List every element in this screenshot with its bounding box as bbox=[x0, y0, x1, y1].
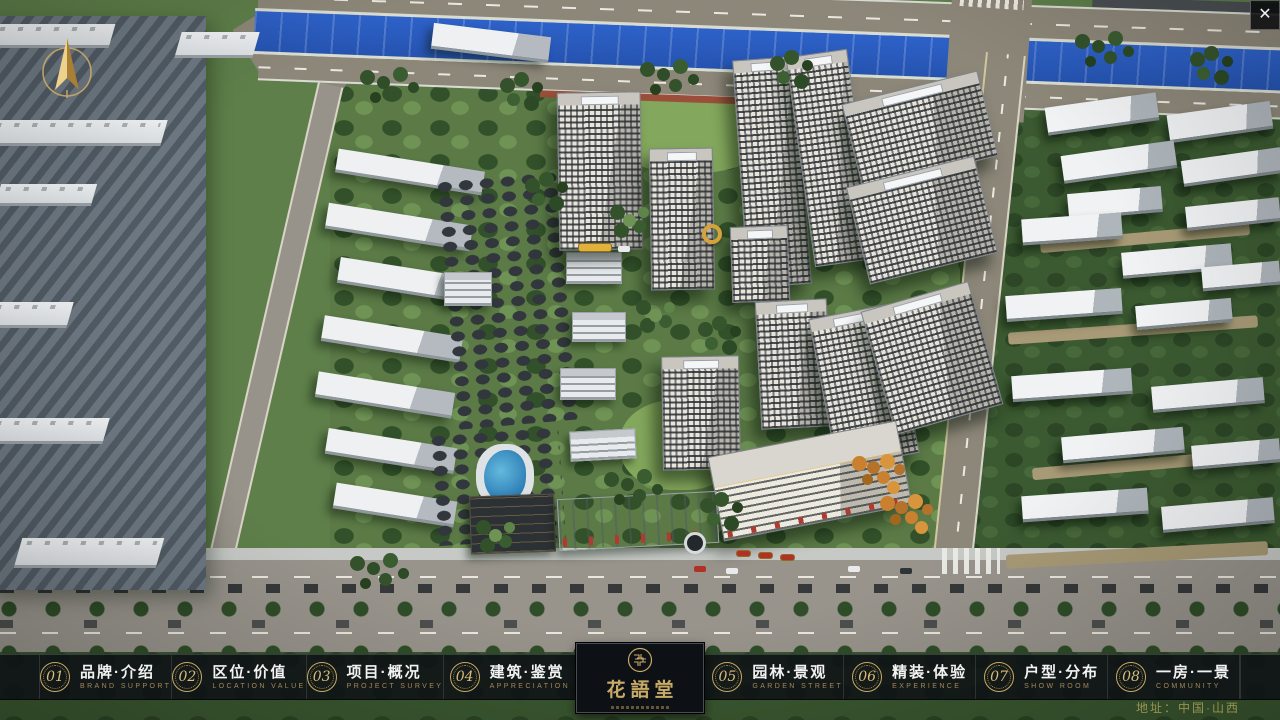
nav-number-badge: 06 bbox=[852, 662, 882, 692]
residential-tower bbox=[649, 147, 715, 290]
nav-number-badge: 05 bbox=[712, 662, 742, 692]
shuttle-bus bbox=[578, 243, 612, 252]
nav-item-location[interactable]: 02 区位·价值 LOCATION VALUE bbox=[172, 655, 306, 699]
street-trees bbox=[0, 600, 1280, 618]
car bbox=[618, 246, 630, 252]
navbar-left-pad bbox=[0, 655, 40, 699]
nav-item-floorplan[interactable]: 07 户型·分布 SHOW ROOM bbox=[976, 655, 1108, 699]
crosswalk bbox=[942, 548, 1000, 574]
nav-number-badge: 07 bbox=[984, 662, 1014, 692]
nav-item-interior[interactable]: 06 精装·体验 EXPERIENCE bbox=[844, 655, 976, 699]
car bbox=[900, 568, 912, 574]
nav-item-brand[interactable]: 01 品牌·介绍 BRAND SUPPORT bbox=[40, 655, 172, 699]
midrise-building bbox=[572, 312, 626, 342]
red-bus bbox=[780, 554, 795, 561]
tree-cluster bbox=[476, 520, 491, 535]
nav-number-badge: 04 bbox=[450, 662, 480, 692]
tower-roof bbox=[0, 184, 97, 206]
nav-item-title: 精装·体验 bbox=[892, 664, 967, 681]
nav-item-title: 户型·分布 bbox=[1024, 664, 1099, 681]
project-logo[interactable]: 花語堂 bbox=[576, 643, 704, 713]
tree-cluster bbox=[360, 70, 375, 85]
nav-item-project[interactable]: 03 项目·概况 PROJECT SURVEY bbox=[307, 655, 445, 699]
gold-sculpture bbox=[702, 224, 722, 244]
tree-cluster bbox=[500, 78, 515, 93]
city-towers-west bbox=[0, 16, 206, 590]
nav-item-title: 建筑·鉴赏 bbox=[490, 664, 570, 681]
nav-item-subtitle: EXPERIENCE bbox=[892, 683, 967, 690]
orange-tree-cluster bbox=[880, 496, 895, 511]
nav-item-subtitle: COMMUNITY bbox=[1156, 683, 1231, 690]
tree-cluster bbox=[1190, 52, 1205, 67]
tree-cluster bbox=[640, 62, 655, 77]
nav-number-badge: 02 bbox=[172, 662, 202, 692]
tower-roof bbox=[0, 418, 110, 444]
close-icon: ✕ bbox=[1258, 6, 1271, 23]
orange-tree-cluster bbox=[852, 456, 867, 471]
tree-cluster bbox=[698, 322, 713, 337]
tower-roof bbox=[14, 538, 165, 568]
tree-cluster bbox=[700, 498, 715, 513]
masterplan-3d-view[interactable] bbox=[0, 0, 1280, 720]
midrise-building bbox=[560, 368, 616, 400]
nav-item-title: 园林·景观 bbox=[752, 664, 843, 681]
tree-cluster bbox=[350, 556, 365, 571]
tower-roof bbox=[0, 302, 74, 328]
red-bus bbox=[736, 550, 751, 557]
logo-name: 花語堂 bbox=[601, 675, 678, 702]
logo-tagline bbox=[611, 706, 669, 709]
traffic-cars-row bbox=[0, 620, 1280, 628]
nav-number-badge: 01 bbox=[40, 662, 70, 692]
nav-item-title: 一房·一景 bbox=[1156, 664, 1231, 681]
nav-item-subtitle: APPRECIATION bbox=[490, 683, 570, 690]
nav-item-architecture[interactable]: 04 建筑·鉴赏 APPRECIATION bbox=[444, 655, 576, 699]
nav-item-garden[interactable]: 05 园林·景观 GARDEN STREET bbox=[712, 655, 844, 699]
navbar-right-pad bbox=[1240, 655, 1280, 699]
address-text: 地址：中国·山西 bbox=[1136, 699, 1240, 716]
tree-cluster bbox=[525, 178, 540, 193]
residential-tower bbox=[557, 91, 644, 250]
nav-item-subtitle: BRAND SUPPORT bbox=[80, 683, 171, 690]
compass-icon bbox=[30, 34, 104, 100]
logo-seal-icon bbox=[627, 647, 653, 673]
tower-roof bbox=[0, 120, 168, 146]
nav-item-subtitle: PROJECT SURVEY bbox=[347, 683, 444, 690]
tree-cluster bbox=[1075, 34, 1090, 49]
close-button[interactable]: ✕ bbox=[1250, 0, 1280, 30]
red-bus bbox=[758, 552, 773, 559]
nav-item-subtitle: GARDEN STREET bbox=[752, 683, 843, 690]
nav-item-title: 项目·概况 bbox=[347, 664, 444, 681]
residential-tower bbox=[730, 225, 791, 303]
nav-item-title: 品牌·介绍 bbox=[80, 664, 171, 681]
midrise-building bbox=[444, 272, 492, 306]
tree-cluster bbox=[604, 472, 619, 487]
tree-cluster bbox=[770, 56, 785, 71]
tree-cluster bbox=[636, 300, 651, 315]
nav-item-views[interactable]: 08 一房·一景 COMMUNITY bbox=[1108, 655, 1240, 699]
nav-number-badge: 08 bbox=[1116, 662, 1146, 692]
car bbox=[694, 566, 706, 572]
tower-roof bbox=[174, 32, 259, 58]
entry-plaza-circle bbox=[684, 532, 706, 554]
nav-item-subtitle: SHOW ROOM bbox=[1024, 683, 1099, 690]
tree-cluster bbox=[610, 205, 625, 220]
nav-number-badge: 03 bbox=[307, 662, 337, 692]
nav-item-title: 区位·价值 bbox=[212, 664, 305, 681]
midrise-building bbox=[569, 428, 636, 461]
nav-item-subtitle: LOCATION VALUE bbox=[212, 683, 305, 690]
car bbox=[726, 568, 738, 574]
car bbox=[848, 566, 860, 572]
midrise-building bbox=[566, 252, 622, 284]
